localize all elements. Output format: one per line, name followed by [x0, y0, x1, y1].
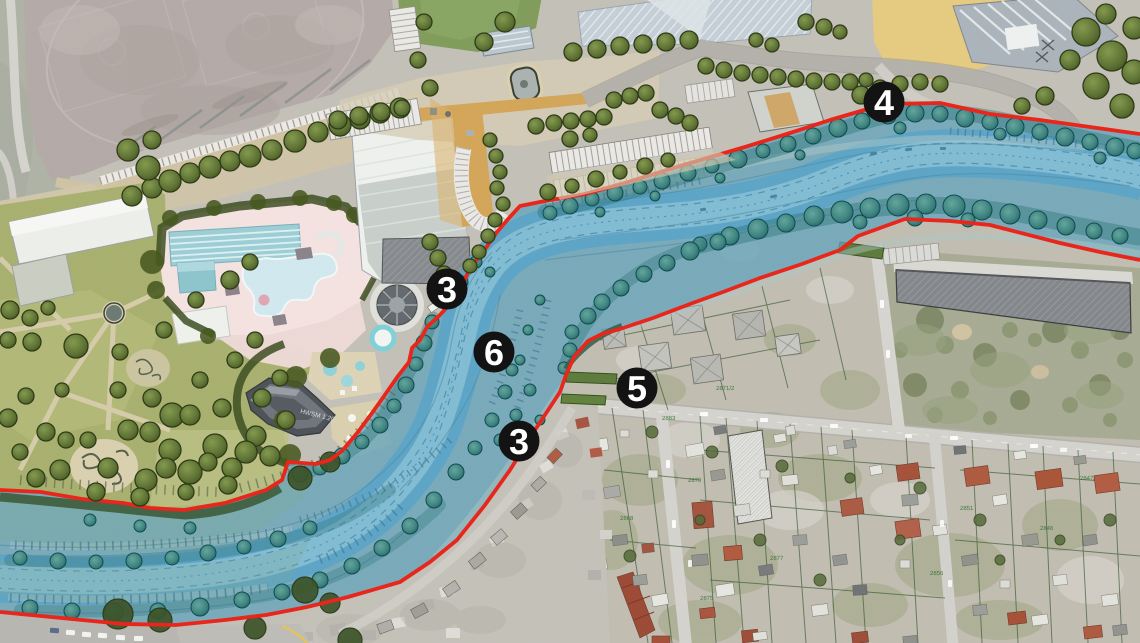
svg-text:3: 3 [437, 269, 457, 310]
svg-text:6: 6 [484, 332, 504, 373]
svg-text:5: 5 [627, 368, 647, 409]
svg-text:4: 4 [874, 82, 894, 123]
svg-text:3: 3 [509, 421, 529, 462]
